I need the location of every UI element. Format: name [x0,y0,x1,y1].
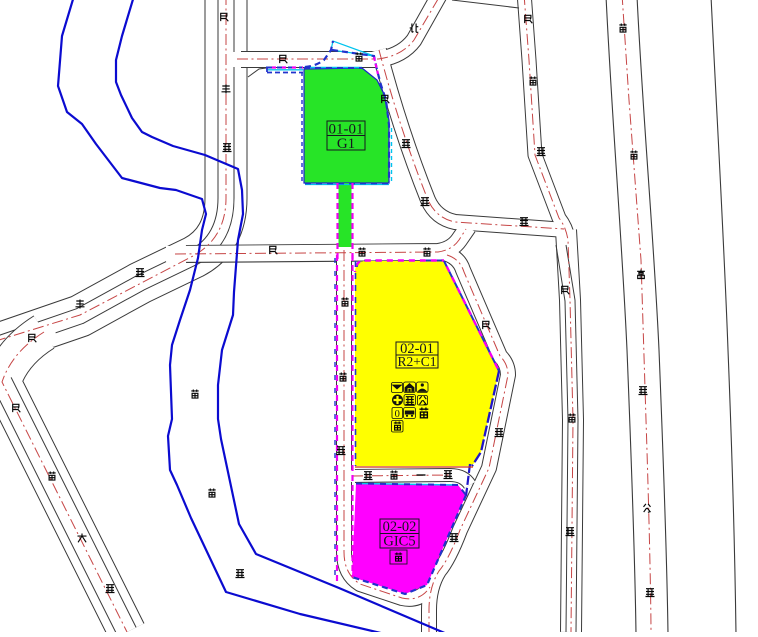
svg-text:GIC5: GIC5 [383,534,415,550]
svg-text:0: 0 [395,409,400,420]
svg-text:G1: G1 [337,136,355,152]
svg-text:R2+C1: R2+C1 [397,354,436,369]
